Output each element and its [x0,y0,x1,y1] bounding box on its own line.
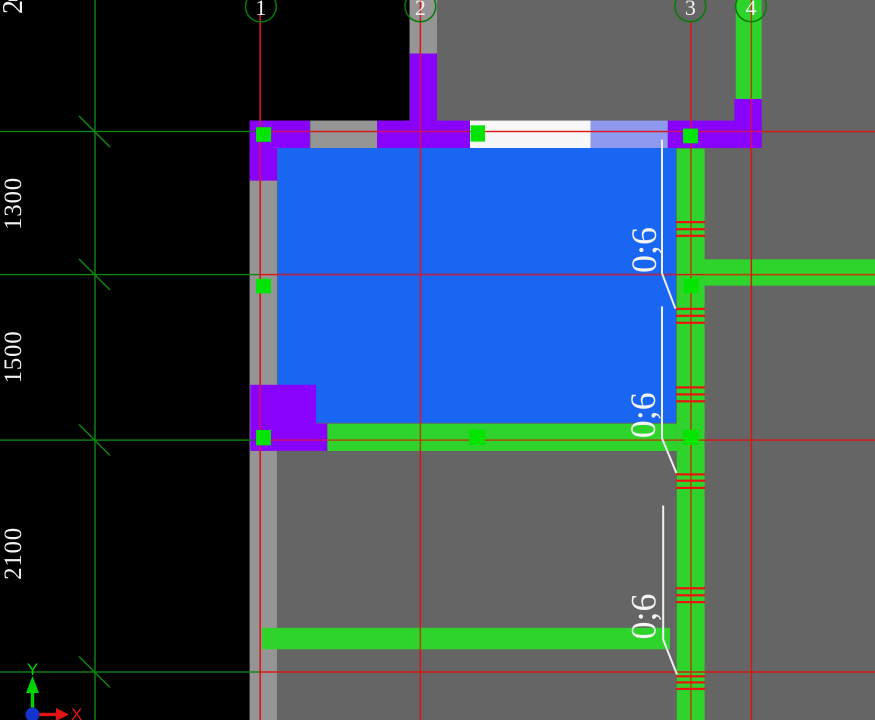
svg-text:X: X [71,705,82,720]
svg-text:4: 4 [746,0,757,20]
svg-text:0;6: 0;6 [624,227,664,273]
svg-text:0;6: 0;6 [623,392,663,438]
svg-text:Y: Y [27,660,38,679]
svg-text:2: 2 [0,0,29,14]
svg-text:1300: 1300 [0,177,27,230]
svg-text:1: 1 [255,0,266,20]
svg-text:3: 3 [685,0,696,20]
svg-text:1500: 1500 [0,331,27,384]
svg-text:0;6: 0;6 [624,593,664,639]
svg-text:2: 2 [415,0,426,20]
svg-text:2100: 2100 [0,527,27,580]
